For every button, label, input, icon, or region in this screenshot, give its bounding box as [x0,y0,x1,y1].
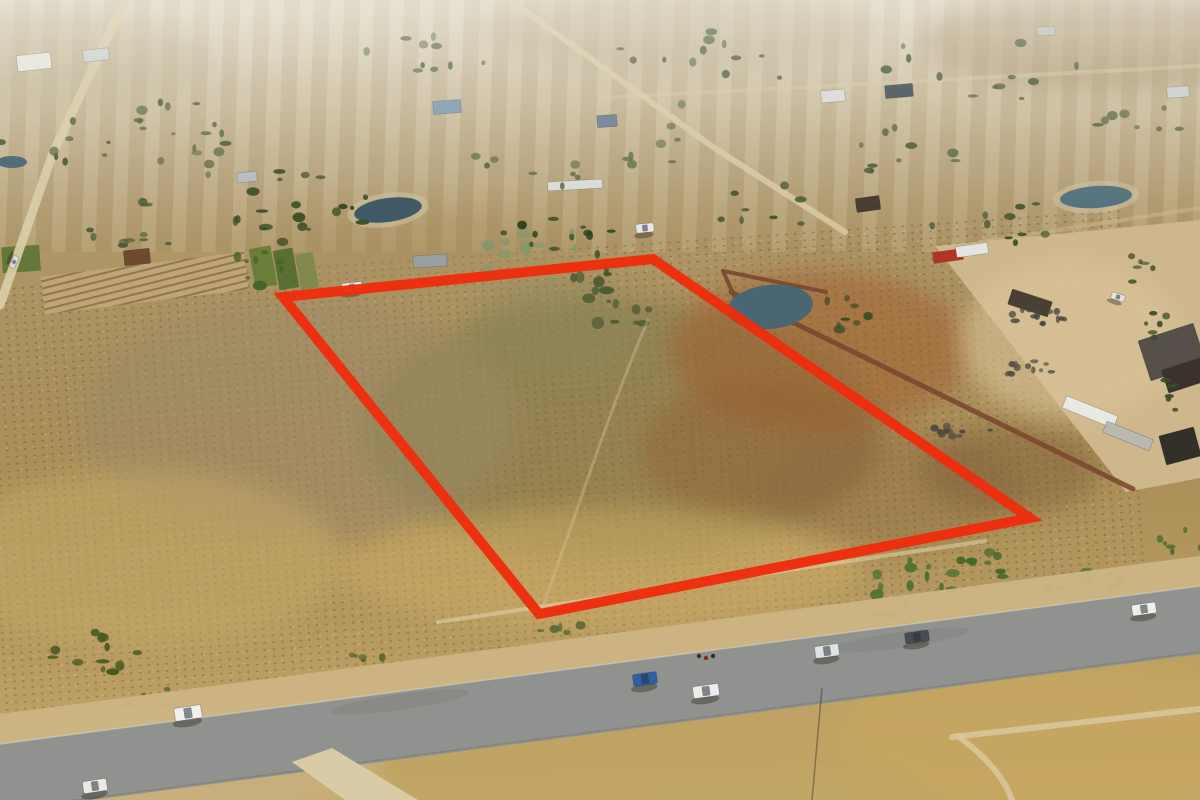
building [884,83,913,98]
pond [0,156,27,168]
terrain-scene [0,0,1200,800]
building [237,171,258,183]
building [123,248,150,266]
vehicle [633,223,655,240]
building [597,114,618,127]
building [1037,26,1055,36]
aerial-photo [0,0,1200,800]
building [433,100,462,115]
pedestrian [704,656,708,660]
building [82,48,109,63]
building [855,195,881,212]
building [16,52,51,71]
pedestrian [711,654,715,658]
building [413,254,448,268]
building [821,89,846,103]
pedestrian [697,654,701,658]
building [1167,86,1190,99]
building [547,179,602,191]
